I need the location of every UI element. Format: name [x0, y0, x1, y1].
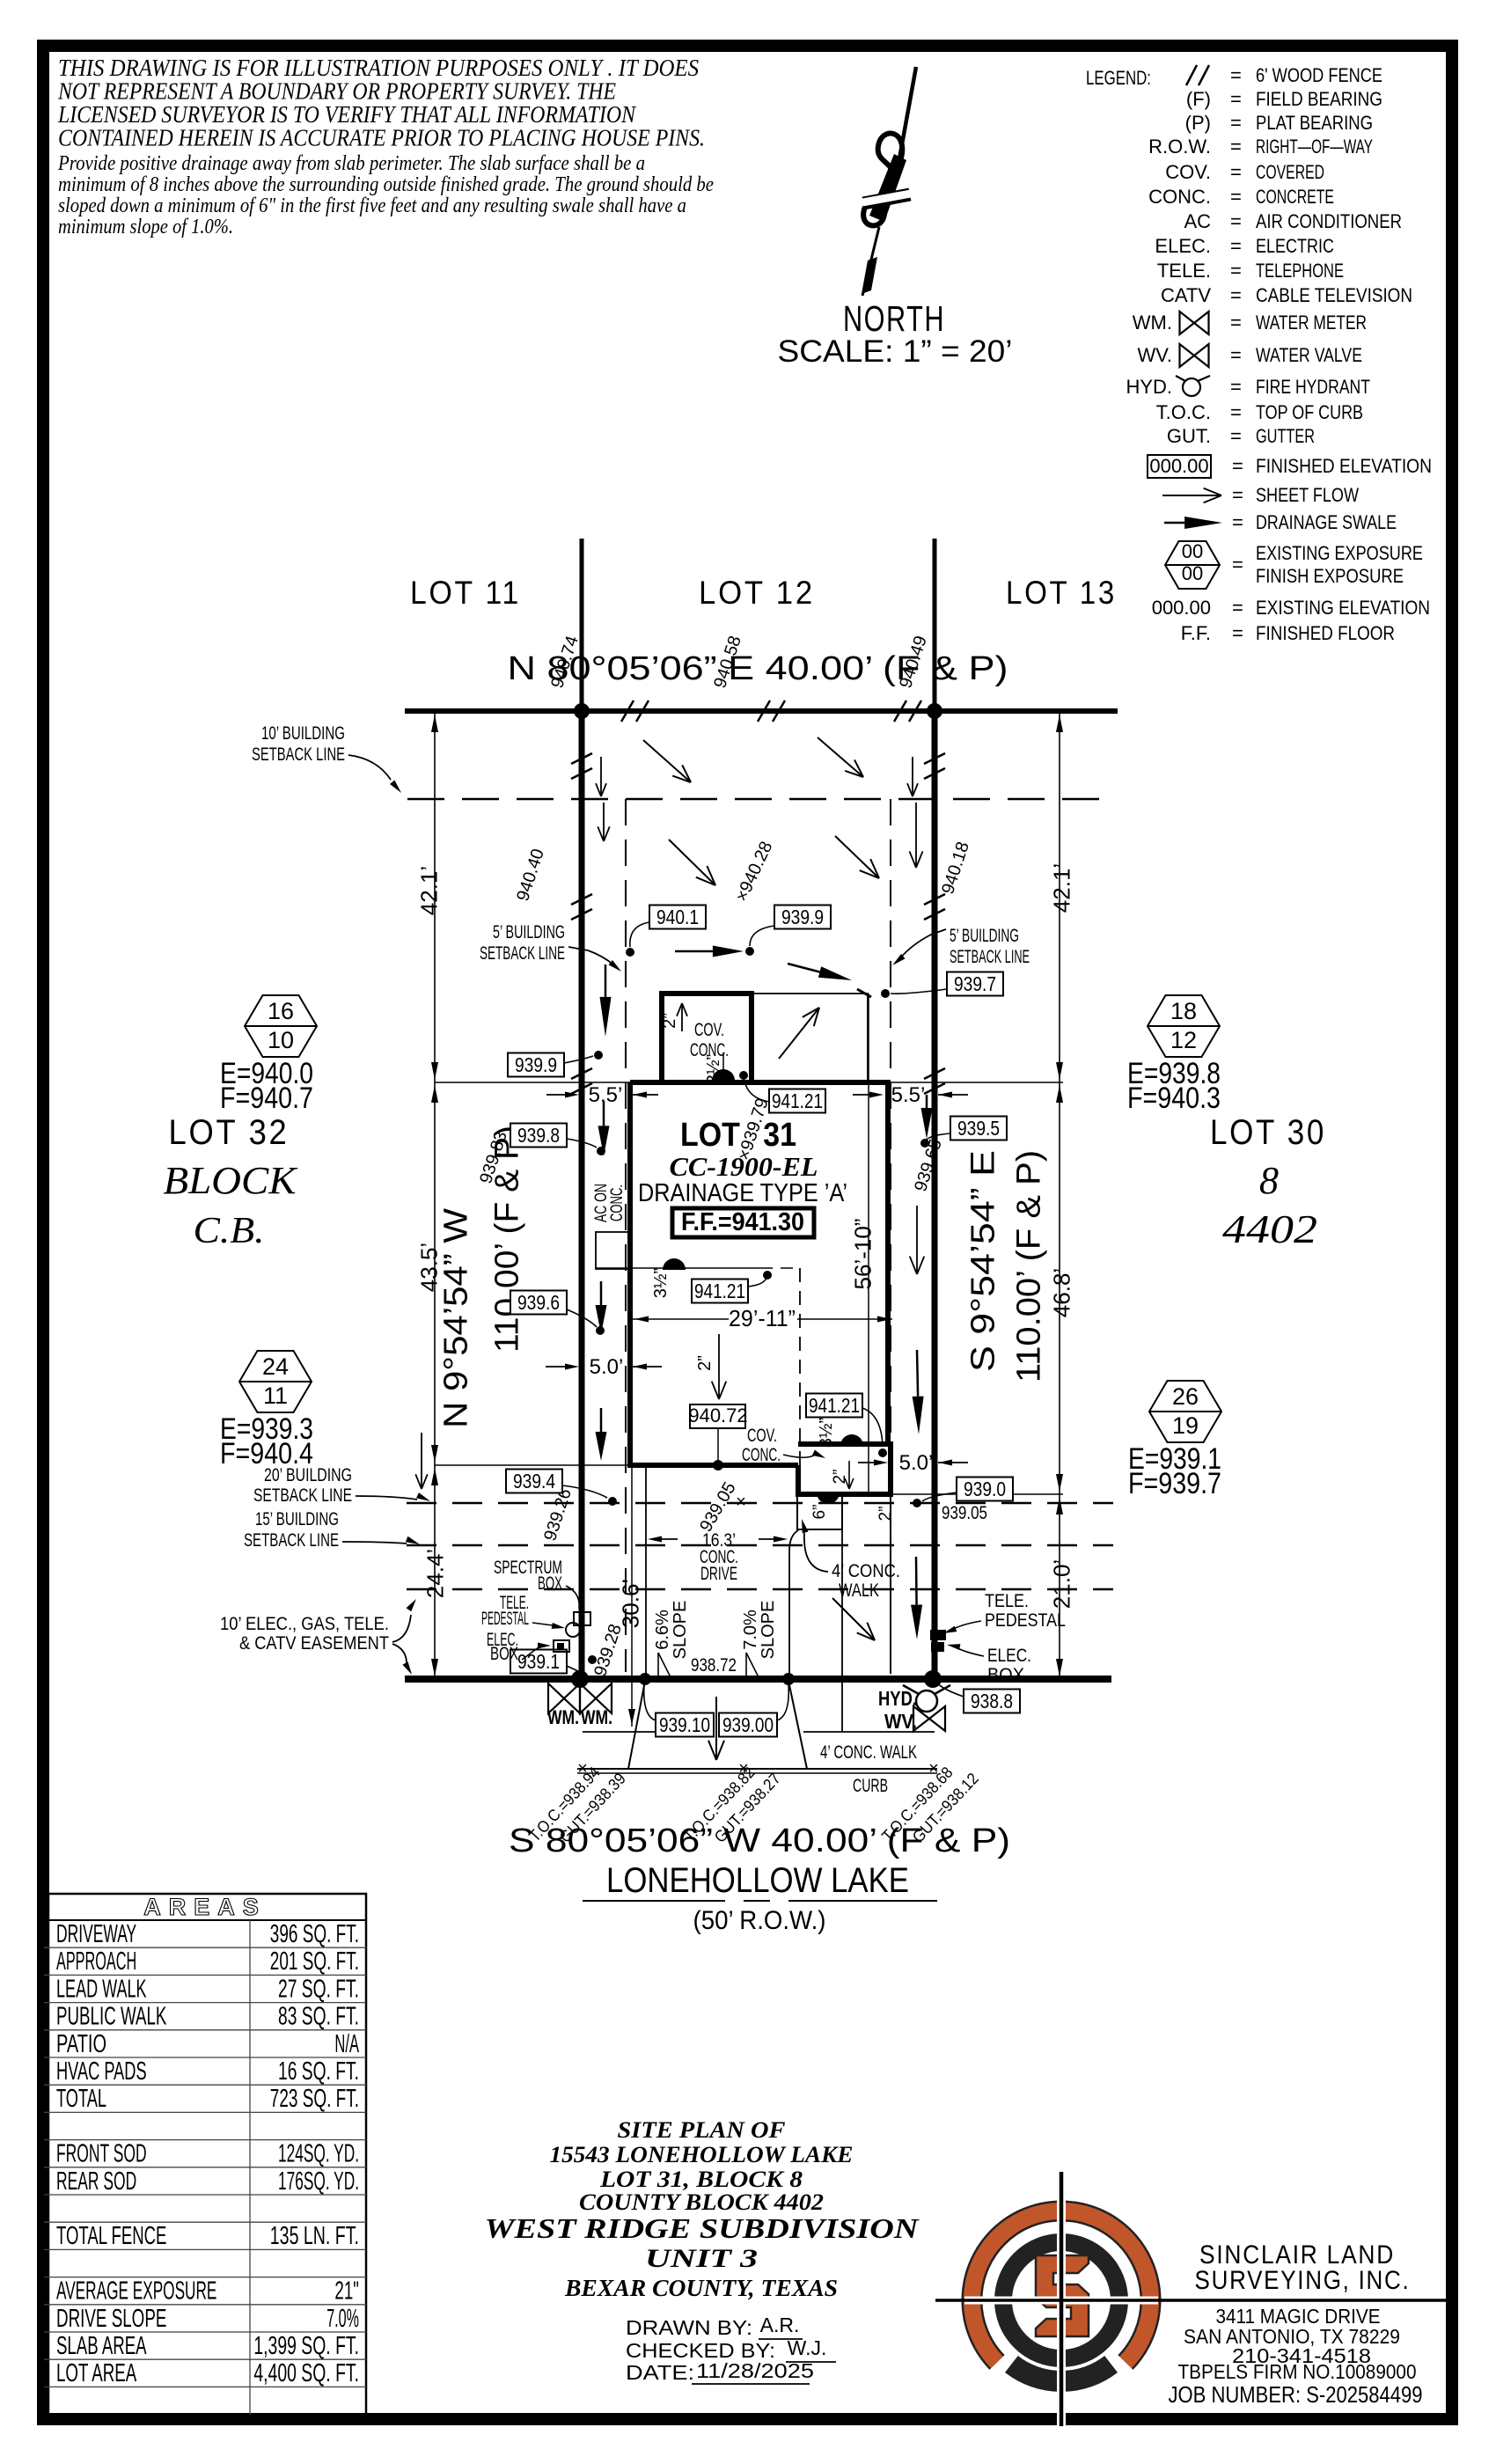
svg-text:SCALE: 1” = 20’: SCALE: 1” = 20’ — [778, 334, 1013, 369]
svg-text:6.6%: 6.6% — [653, 1610, 672, 1650]
svg-text:27 SQ. FT.: 27 SQ. FT. — [278, 1975, 359, 2003]
svg-text:A.R.: A.R. — [760, 2314, 800, 2336]
svg-text:939.7: 939.7 — [954, 972, 996, 995]
svg-text:WM.: WM. — [1133, 312, 1172, 334]
svg-text:Provide positive drainage away: Provide positive drainage away from slab… — [57, 152, 645, 175]
svg-text:LONEHOLLOW LAKE: LONEHOLLOW LAKE — [606, 1861, 909, 1900]
svg-text:=: = — [1230, 136, 1242, 158]
svg-text:56’-10”: 56’-10” — [849, 1219, 876, 1290]
svg-text:3½”: 3½” — [817, 1418, 836, 1448]
svg-text:5.0’: 5.0’ — [899, 1451, 934, 1475]
svg-text:COV.: COV. — [1165, 161, 1211, 183]
svg-text:AREAS: AREAS — [143, 1894, 267, 1920]
svg-text:LEGEND:: LEGEND: — [1086, 67, 1151, 89]
svg-text:939.9: 939.9 — [781, 906, 824, 928]
svg-text:minimum slope of 1.0%.: minimum slope of 1.0%. — [58, 216, 233, 238]
svg-text:124SQ. YD.: 124SQ. YD. — [278, 2140, 359, 2168]
svg-text:REAR SOD: REAR SOD — [56, 2167, 136, 2196]
svg-text:DRIVE: DRIVE — [700, 1564, 737, 1584]
svg-text:F.F.=941.30: F.F.=941.30 — [681, 1208, 804, 1236]
svg-text:7.0%: 7.0% — [741, 1610, 760, 1650]
svg-text:GUT.: GUT. — [1167, 425, 1211, 447]
svg-text:FIELD BEARING: FIELD BEARING — [1256, 88, 1382, 110]
svg-text:18: 18 — [1170, 998, 1197, 1024]
svg-text:939.5: 939.5 — [957, 1117, 1000, 1140]
svg-text:42.1’: 42.1’ — [1048, 863, 1074, 913]
svg-text:941.21: 941.21 — [694, 1280, 745, 1302]
svg-text:940.1: 940.1 — [656, 906, 699, 928]
svg-text:SETBACK LINE: SETBACK LINE — [950, 947, 1030, 967]
svg-text:5.5’: 5.5’ — [589, 1083, 623, 1107]
svg-text:THIS DRAWING IS FOR ILLUSTRATI: THIS DRAWING IS FOR ILLUSTRATION PURPOSE… — [58, 55, 699, 81]
svg-text:PEDESTAL: PEDESTAL — [481, 1609, 529, 1629]
svg-text:AIR CONDITIONER: AIR CONDITIONER — [1256, 210, 1402, 232]
svg-text:×: × — [577, 1759, 588, 1778]
svg-text:00: 00 — [1182, 562, 1203, 584]
svg-text:=: = — [1232, 511, 1243, 533]
svg-text:WV.: WV. — [884, 1710, 917, 1733]
svg-text:26: 26 — [1172, 1383, 1199, 1410]
svg-text:(P): (P) — [1185, 112, 1211, 134]
svg-text:LICENSED SURVEYOR IS TO VERIFY: LICENSED SURVEYOR IS TO VERIFY THAT ALL … — [57, 101, 637, 128]
svg-text:TELE.: TELE. — [985, 1591, 1029, 1611]
svg-text:42.1’: 42.1’ — [415, 866, 442, 915]
svg-text:=: = — [1230, 186, 1242, 208]
svg-text:R.O.W.: R.O.W. — [1148, 136, 1211, 158]
svg-text:RIGHT—OF—WAY: RIGHT—OF—WAY — [1256, 136, 1373, 158]
svg-text:201 SQ. FT.: 201 SQ. FT. — [270, 1947, 359, 1976]
svg-text:ELEC.: ELEC. — [987, 1646, 1031, 1666]
svg-text:6”: 6” — [810, 1505, 829, 1520]
svg-text:DRAWN BY:: DRAWN BY: — [626, 2316, 752, 2339]
svg-text:=: = — [1232, 455, 1243, 477]
svg-text:PUBLIC WALK: PUBLIC WALK — [56, 2003, 167, 2031]
svg-text:TOTAL: TOTAL — [56, 2085, 106, 2113]
svg-text:7.0%: 7.0% — [326, 2305, 359, 2333]
svg-text:WALK: WALK — [839, 1580, 879, 1601]
svg-text:938.8: 938.8 — [971, 1690, 1013, 1712]
svg-text:CONC.: CONC. — [742, 1445, 781, 1465]
svg-text:HYD.: HYD. — [1126, 376, 1172, 398]
svg-text:3½”: 3½” — [704, 1054, 723, 1084]
svg-text:SITE PLAN OF: SITE PLAN OF — [618, 2117, 786, 2143]
svg-text:CONCRETE: CONCRETE — [1256, 186, 1334, 208]
svg-text:=: = — [1230, 64, 1242, 86]
svg-text:5’ BUILDING: 5’ BUILDING — [493, 922, 565, 942]
svg-text:LOT 11: LOT 11 — [410, 575, 521, 611]
svg-text:=: = — [1230, 161, 1242, 183]
svg-text:5’ BUILDING: 5’ BUILDING — [950, 926, 1019, 946]
svg-text:BOX: BOX — [490, 1644, 518, 1664]
svg-text:sloped down a minimum of 6" in: sloped down a minimum of 6" in the first… — [58, 194, 686, 217]
svg-text:SETBACK LINE: SETBACK LINE — [252, 744, 345, 765]
svg-text:WATER METER: WATER METER — [1256, 312, 1367, 334]
svg-text:=: = — [1232, 554, 1243, 576]
svg-text:FIRE HYDRANT: FIRE HYDRANT — [1256, 376, 1370, 398]
svg-text:TOTAL FENCE: TOTAL FENCE — [56, 2222, 166, 2250]
svg-text:2”: 2” — [876, 1507, 895, 1522]
svg-text:NORTH: NORTH — [843, 298, 945, 339]
svg-text:5.5’: 5.5’ — [891, 1083, 926, 1107]
svg-text:939.6: 939.6 — [517, 1291, 560, 1314]
svg-text:5.0’: 5.0’ — [590, 1355, 624, 1379]
svg-text:21": 21" — [334, 2277, 359, 2306]
svg-text:minimum of 8 inches above the: minimum of 8 inches above the surroundin… — [58, 173, 714, 196]
svg-text:12: 12 — [1170, 1027, 1197, 1053]
svg-text:10’ BUILDING: 10’ BUILDING — [261, 723, 345, 744]
svg-text:W.J.: W.J. — [788, 2336, 827, 2359]
svg-text:COVERED: COVERED — [1256, 161, 1324, 183]
svg-text:FINISH EXPOSURE: FINISH EXPOSURE — [1256, 565, 1404, 587]
svg-text:JOB NUMBER: S-202584499: JOB NUMBER: S-202584499 — [1169, 2381, 1423, 2408]
svg-text:N 9°54’54” W: N 9°54’54” W — [438, 1208, 475, 1428]
svg-text:BOX: BOX — [538, 1573, 562, 1594]
svg-text:C.B.: C.B. — [194, 1211, 265, 1251]
svg-text:F=940.4: F=940.4 — [220, 1437, 313, 1470]
svg-text:16: 16 — [268, 998, 294, 1024]
svg-text:=: = — [1230, 284, 1242, 306]
svg-text:4,400 SQ. FT.: 4,400 SQ. FT. — [253, 2359, 359, 2387]
svg-text:CONC.: CONC. — [1148, 186, 1211, 208]
svg-text:FRONT SOD: FRONT SOD — [56, 2140, 147, 2168]
svg-text:SETBACK LINE: SETBACK LINE — [480, 943, 565, 964]
svg-text:DRIVEWAY: DRIVEWAY — [56, 1920, 136, 1948]
svg-text:WEST RIDGE SUBDIVISION: WEST RIDGE SUBDIVISION — [485, 2212, 920, 2244]
svg-text:DRAINAGE TYPE ’A’: DRAINAGE TYPE ’A’ — [638, 1179, 847, 1207]
svg-text:939.0: 939.0 — [964, 1478, 1006, 1500]
svg-text:19: 19 — [1172, 1412, 1199, 1439]
svg-text:=: = — [1232, 622, 1243, 644]
svg-text:00: 00 — [1182, 540, 1203, 562]
svg-text:S 9°54’54” E: S 9°54’54” E — [965, 1150, 1002, 1372]
svg-text:PLAT BEARING: PLAT BEARING — [1256, 112, 1373, 134]
svg-text:DRAINAGE SWALE: DRAINAGE SWALE — [1256, 511, 1397, 533]
svg-text:WM.: WM. — [581, 1706, 612, 1728]
svg-text:LEAD WALK: LEAD WALK — [56, 1975, 147, 2003]
svg-text:=: = — [1230, 425, 1242, 447]
svg-text:SURVEYING, INC.: SURVEYING, INC. — [1195, 2266, 1411, 2295]
svg-text:AVERAGE EXPOSURE: AVERAGE EXPOSURE — [56, 2277, 216, 2306]
svg-text:396 SQ. FT.: 396 SQ. FT. — [270, 1920, 359, 1948]
svg-text:(50’ R.O.W.): (50’ R.O.W.) — [693, 1906, 826, 1935]
svg-text:939.4: 939.4 — [513, 1470, 555, 1492]
svg-text:COV.: COV. — [747, 1426, 777, 1446]
svg-text:HYD.: HYD. — [878, 1687, 917, 1710]
svg-text:723 SQ. FT.: 723 SQ. FT. — [270, 2085, 359, 2113]
svg-text:21.0’: 21.0’ — [1048, 1559, 1074, 1609]
svg-text:ELEC.: ELEC. — [1155, 235, 1211, 257]
svg-text:TOP OF CURB: TOP OF CURB — [1256, 401, 1363, 423]
svg-text:24.4’: 24.4’ — [422, 1549, 448, 1598]
svg-text:LOT 30: LOT 30 — [1210, 1113, 1326, 1152]
svg-text:F=940.7: F=940.7 — [220, 1082, 313, 1115]
svg-text:GUTTER: GUTTER — [1256, 425, 1315, 447]
svg-text:=: = — [1232, 597, 1243, 619]
svg-text:SETBACK LINE: SETBACK LINE — [253, 1485, 352, 1506]
svg-text:CURB: CURB — [853, 1776, 888, 1796]
svg-text:APPROACH: APPROACH — [56, 1947, 136, 1976]
svg-text:TELEPHONE: TELEPHONE — [1256, 260, 1344, 282]
svg-text:BLOCK: BLOCK — [164, 1159, 299, 1202]
svg-text:LOT AREA: LOT AREA — [56, 2359, 137, 2387]
svg-text:DATE:: DATE: — [626, 2361, 694, 2384]
svg-text:COUNTY BLOCK 4402: COUNTY BLOCK 4402 — [579, 2189, 824, 2215]
svg-text:×: × — [738, 1759, 749, 1778]
svg-text:WM.: WM. — [547, 1706, 579, 1728]
svg-text:940.72: 940.72 — [688, 1404, 747, 1426]
svg-text:CONC.: CONC. — [608, 1184, 627, 1221]
svg-text:SHEET FLOW: SHEET FLOW — [1256, 484, 1359, 506]
svg-text:TELE.: TELE. — [1157, 260, 1211, 282]
svg-text:WV.: WV. — [1137, 344, 1172, 366]
svg-text:EXISTING EXPOSURE: EXISTING EXPOSURE — [1256, 542, 1423, 564]
svg-text:TBPELS FIRM NO.10089000: TBPELS FIRM NO.10089000 — [1178, 2360, 1417, 2383]
svg-text:83 SQ. FT.: 83 SQ. FT. — [278, 2003, 359, 2031]
svg-text:939.9: 939.9 — [515, 1053, 557, 1076]
svg-text:11: 11 — [263, 1382, 288, 1409]
svg-text:11/28/2025: 11/28/2025 — [696, 2359, 814, 2382]
svg-text:=: = — [1230, 210, 1242, 232]
svg-text:15’ BUILDING: 15’ BUILDING — [255, 1509, 339, 1529]
svg-text:FINISHED ELEVATION: FINISHED ELEVATION — [1256, 455, 1432, 477]
svg-text:6' WOOD FENCE: 6' WOOD FENCE — [1256, 64, 1382, 86]
svg-text:176SQ. YD.: 176SQ. YD. — [278, 2167, 359, 2196]
svg-text:EXISTING ELEVATION: EXISTING ELEVATION — [1256, 597, 1430, 619]
svg-text:COV.: COV. — [694, 1020, 724, 1040]
svg-text:939.10: 939.10 — [659, 1713, 710, 1736]
svg-text:10’ ELEC., GAS, TELE.: 10’ ELEC., GAS, TELE. — [220, 1614, 389, 1634]
svg-text:8: 8 — [1259, 1159, 1279, 1202]
svg-text:HVAC PADS: HVAC PADS — [56, 2057, 147, 2086]
svg-text:LOT 13: LOT 13 — [1006, 575, 1117, 611]
svg-text:×: × — [928, 1759, 939, 1778]
svg-text:1,399 SQ. FT.: 1,399 SQ. FT. — [253, 2332, 359, 2360]
svg-text:10: 10 — [268, 1027, 294, 1053]
svg-text:4’ CONC.: 4’ CONC. — [832, 1561, 900, 1581]
svg-text:F=939.7: F=939.7 — [1128, 1467, 1221, 1500]
svg-text:UNIT 3: UNIT 3 — [645, 2244, 758, 2273]
svg-text:CABLE TELEVISION: CABLE TELEVISION — [1256, 284, 1412, 306]
svg-text:30.6’: 30.6’ — [617, 1579, 643, 1628]
svg-text:=: = — [1232, 484, 1243, 506]
svg-text:CATV: CATV — [1161, 284, 1211, 306]
svg-text:939.8: 939.8 — [517, 1124, 560, 1147]
svg-text:939.05: 939.05 — [942, 1503, 987, 1523]
svg-text:NOT REPRESENT A BOUNDARY OR PR: NOT REPRESENT A BOUNDARY OR PROPERTY SUR… — [57, 78, 616, 105]
svg-text:SETBACK LINE: SETBACK LINE — [244, 1530, 339, 1551]
svg-text:941.21: 941.21 — [772, 1089, 823, 1112]
svg-text:15543 LONEHOLLOW LAKE: 15543 LONEHOLLOW LAKE — [550, 2142, 854, 2167]
svg-text:LOT 31, BLOCK 8: LOT 31, BLOCK 8 — [599, 2167, 803, 2192]
svg-text:PATIO: PATIO — [56, 2030, 106, 2058]
svg-text:46.8’: 46.8’ — [1048, 1268, 1074, 1317]
svg-text:939.00: 939.00 — [722, 1713, 774, 1736]
svg-text:& CATV EASEMENT: & CATV EASEMENT — [239, 1633, 389, 1654]
svg-text:WATER VALVE: WATER VALVE — [1256, 344, 1362, 366]
svg-text:=: = — [1230, 112, 1242, 134]
svg-text:=: = — [1230, 401, 1242, 423]
svg-text:FINISHED FLOOR: FINISHED FLOOR — [1256, 622, 1395, 644]
svg-text:24: 24 — [262, 1353, 289, 1380]
svg-text:135 LN. FT.: 135 LN. FT. — [270, 2222, 359, 2250]
svg-text:000.00: 000.00 — [1152, 597, 1211, 619]
svg-text:BEXAR COUNTY, TEXAS: BEXAR COUNTY, TEXAS — [564, 2275, 838, 2301]
svg-text:LOT 32: LOT 32 — [169, 1113, 290, 1152]
svg-text:SLAB AREA: SLAB AREA — [56, 2332, 147, 2360]
svg-text:=: = — [1230, 376, 1242, 398]
svg-text:T.O.C.: T.O.C. — [1156, 401, 1211, 423]
svg-text:LOT 12: LOT 12 — [699, 575, 815, 611]
svg-text:4402: 4402 — [1222, 1206, 1317, 1251]
svg-text:BOX: BOX — [987, 1665, 1024, 1685]
svg-text:29’-11”: 29’-11” — [729, 1305, 796, 1331]
svg-text:F=940.3: F=940.3 — [1127, 1082, 1221, 1115]
svg-text:×: × — [736, 1492, 746, 1512]
svg-text:AC: AC — [1184, 210, 1211, 232]
svg-text:939.1: 939.1 — [517, 1650, 560, 1673]
svg-text:110.00’ (F & P): 110.00’ (F & P) — [1011, 1150, 1048, 1382]
svg-text:PEDESTAL: PEDESTAL — [985, 1610, 1066, 1631]
svg-text:2”: 2” — [695, 1355, 715, 1371]
svg-text:3½”: 3½” — [651, 1268, 671, 1298]
svg-text:S 80°05’06” W 40.00’ (F & P): S 80°05’06” W 40.00’ (F & P) — [509, 1822, 1010, 1859]
svg-text:ELECTRIC: ELECTRIC — [1256, 235, 1334, 257]
svg-text:N/A: N/A — [334, 2030, 359, 2058]
svg-text:SLOPE: SLOPE — [671, 1601, 690, 1660]
svg-text:4’ CONC. WALK: 4’ CONC. WALK — [820, 1742, 917, 1763]
svg-text:SLOPE: SLOPE — [759, 1601, 778, 1660]
svg-text:=: = — [1230, 312, 1242, 334]
svg-text:=: = — [1230, 260, 1242, 282]
svg-text:000.00: 000.00 — [1149, 455, 1208, 477]
svg-text:=: = — [1230, 235, 1242, 257]
svg-text:=: = — [1230, 344, 1242, 366]
svg-text:CONTAINED HEREIN IS ACCURATE P: CONTAINED HEREIN IS ACCURATE PRIOR TO PL… — [58, 125, 705, 151]
svg-text:=: = — [1230, 88, 1242, 110]
svg-text:F.F.: F.F. — [1181, 622, 1211, 644]
svg-text:938.72: 938.72 — [691, 1655, 737, 1676]
svg-text:(F): (F) — [1186, 88, 1211, 110]
svg-text:DRIVE SLOPE: DRIVE SLOPE — [56, 2305, 166, 2333]
svg-text:16 SQ. FT.: 16 SQ. FT. — [278, 2057, 359, 2086]
svg-text:941.21: 941.21 — [809, 1394, 860, 1417]
